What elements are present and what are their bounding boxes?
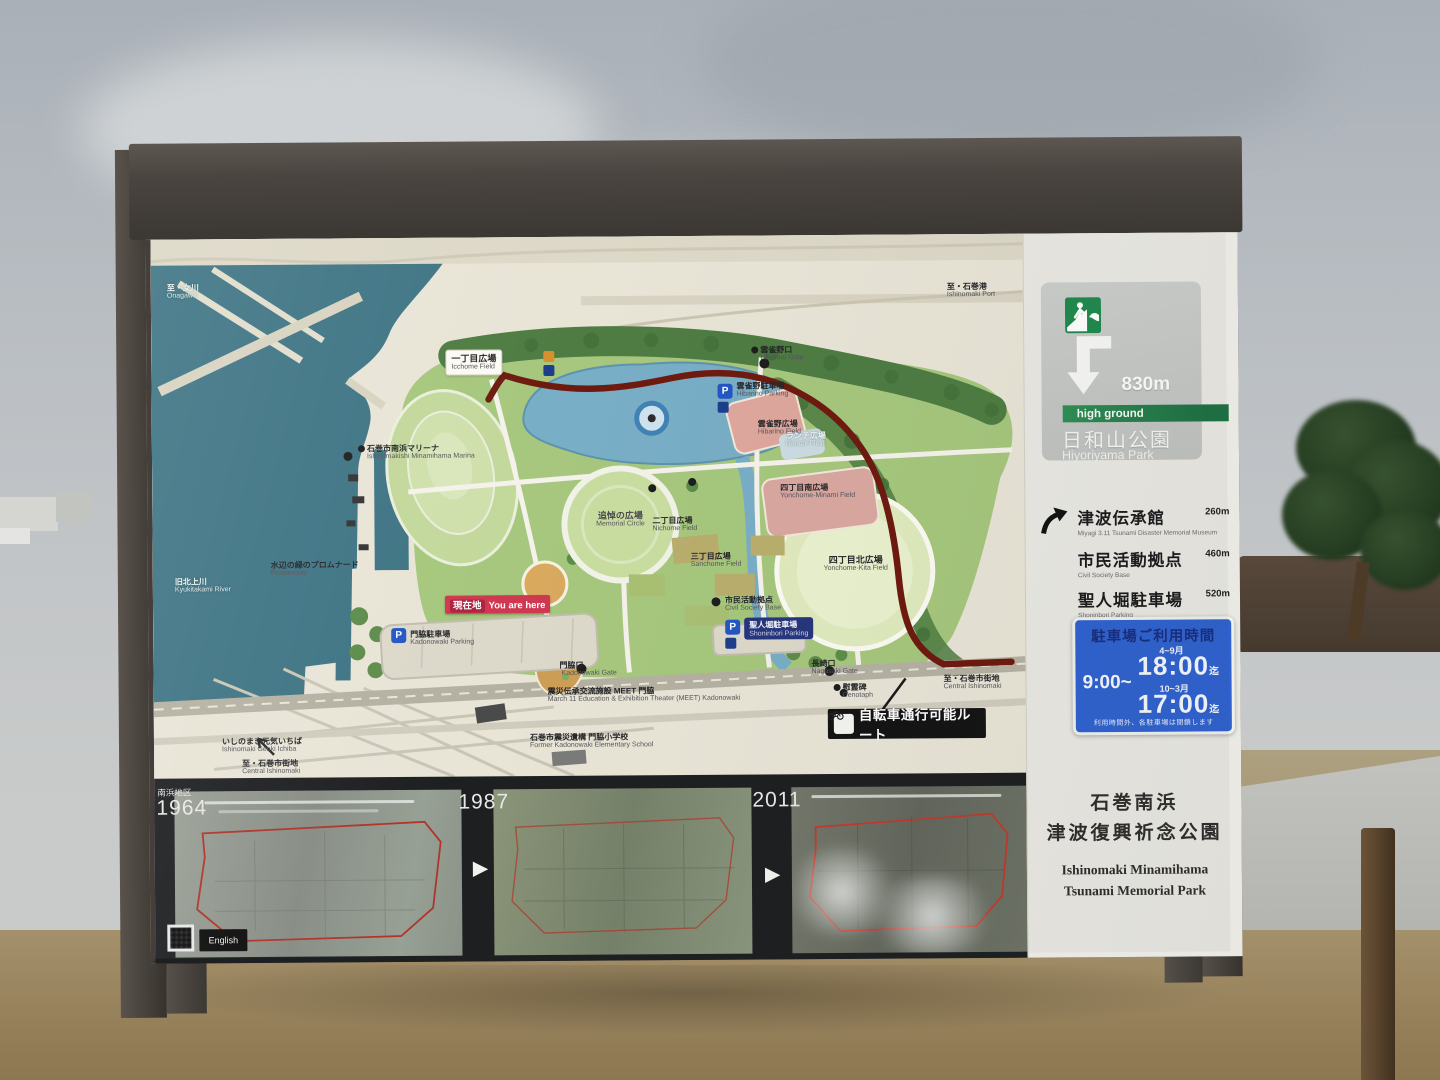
- closing-time-summer: 18:00迄: [1137, 652, 1220, 679]
- map-label-genki-ichiba: いしのまき元気いちばIshinomaki Genki Ichiba: [222, 737, 302, 755]
- destination-en: Hiyoriyama Park: [1062, 448, 1154, 463]
- you-are-here-marker: 現在地You are here: [445, 595, 550, 614]
- parking-icon: P: [725, 620, 740, 635]
- high-ground-bar: high ground: [1063, 404, 1229, 422]
- poi-dot-icon: [358, 446, 365, 453]
- photo-year-2011: 2011: [752, 788, 801, 812]
- facility-icon: [543, 351, 554, 362]
- map-label-kyukitakami: 旧北上川Kyukitakami River: [175, 577, 231, 595]
- map-label-kadonowaki-parking: 門脇駐車場Kadonowaki Parking: [410, 630, 474, 648]
- direction-row: 津波伝承館 Miyagi 3.11 Tsunami Disaster Memor…: [1077, 504, 1229, 537]
- park-map: 至・女川Onagawa 旧北上川Kyukitakami River 石巻市南浜マ…: [150, 234, 1026, 779]
- map-label-cenotaph: 慰霊碑Cenotaph: [834, 683, 873, 701]
- photo-year-1987: 1987: [458, 790, 509, 814]
- opening-time: 9:00~: [1083, 672, 1132, 694]
- aerial-photo-1987: [493, 788, 752, 956]
- qr-code: [167, 924, 194, 951]
- park-title: 石巻南浜 津波復興祈念公園 Ishinomaki Minamihama Tsun…: [1027, 788, 1242, 902]
- map-label-shoninbori-parking: 聖人堀駐車場Shoninbori Parking: [744, 617, 813, 639]
- parking-hours-sign: 駐車場ご利用時間 4~9月 18:00迄 9:00~ 10~3月 17:00迄 …: [1072, 616, 1235, 735]
- parking-icon: P: [717, 384, 732, 399]
- park-information-sign: 至・女川Onagawa 旧北上川Kyukitakami River 石巻市南浜マ…: [0, 0, 1440, 1080]
- photo-year-1964: 1964: [156, 796, 207, 820]
- map-label-former-school: 石巻市震災遺構 門脇小学校Former Kadonowaki Elementar…: [530, 732, 653, 750]
- map-label-central-ishinomaki-e: 至・石巻市街地Central Ishinomaki: [944, 674, 1002, 692]
- map-label-sanchome-field: 三丁目広場Sanchome Field: [691, 552, 742, 570]
- aerial-photo-2011: [791, 786, 1027, 954]
- map-label-nagasaki-gate: 長崎口Nagasaki Gate: [811, 659, 857, 677]
- map-label-hibarino-parking: 雲雀野駐車場Hibarino Parking: [736, 381, 788, 399]
- map-label-nichome-field: 二丁目広場Nichome Field: [652, 516, 697, 534]
- down-arrow-icon: [1057, 336, 1117, 403]
- map-label-yonchome-kita: 四丁目北広場Yonchome-Kita Field: [803, 554, 909, 573]
- gate-dot-icon: [751, 347, 758, 354]
- sign-panel: 至・女川Onagawa 旧北上川Kyukitakami River 石巻市南浜マ…: [145, 232, 1237, 964]
- next-arrow-icon: ▶: [765, 864, 781, 884]
- parking-hours-title: 駐車場ご利用時間: [1075, 624, 1231, 646]
- evacuation-distance: 830m: [1121, 374, 1170, 396]
- tsunami-evacuation-icon: [1065, 297, 1101, 333]
- map-label-kadonowaki-gate: 門脇口Kadonowaki Gate: [559, 661, 616, 679]
- evacuation-box: 830m 日和山公園 Hiyoriyama Park: [1041, 281, 1202, 460]
- map-label-hibarino-gate: 雲雀野口Hibarino Gate: [751, 345, 803, 363]
- info-column: 830m 日和山公園 Hiyoriyama Park high ground 津…: [1022, 232, 1242, 957]
- district-outline: [493, 788, 752, 956]
- toilet-icon: [725, 638, 736, 649]
- map-label-marina: 石巻市南浜マリーナIshinomakishi Minamihama Marina: [358, 443, 475, 461]
- historical-photo-strip: 南浜地区 1964 1987 ▶: [154, 773, 1027, 964]
- map-label-ranchi-field: ランチ広場Ranchi Field: [786, 431, 826, 449]
- closing-time-winter: 17:00迄: [1138, 690, 1221, 717]
- map-label-central-ishinomaki-sw: 至・石巻市街地Central Ishinomaki: [242, 759, 300, 777]
- bicycle-icon: [834, 714, 854, 734]
- english-label: English: [199, 929, 247, 951]
- parking-icon: P: [391, 628, 406, 643]
- map-label-meet: 震災伝承交流施設 MEET 門脇March 11 Education & Exh…: [548, 686, 741, 705]
- map-label-promenade: 水辺の緑のプロムナードPromenade: [271, 560, 359, 578]
- toilet-icon: [543, 365, 554, 376]
- next-arrow-icon: ▶: [473, 858, 489, 878]
- map-label-onagawa: 至・女川Onagawa: [167, 283, 199, 300]
- bike-route-legend: 自転車通行可能ルート: [828, 708, 986, 739]
- smoke: [862, 876, 1003, 953]
- map-label-icchome-field: 一丁目広場Icchome Field: [445, 349, 502, 376]
- direction-row: 聖人堀駐車場 Shoninbori Parking 520m: [1078, 586, 1230, 619]
- poi-dot-icon: [834, 684, 841, 691]
- map-label-ishinomaki-port: 至・石巻港Ishinomaki Port: [947, 282, 995, 300]
- toilet-icon: [718, 402, 729, 413]
- parking-note: 利用時間外、各駐車場は閉鎖します: [1076, 717, 1232, 728]
- direction-arrow-icon: [1039, 505, 1069, 535]
- sign-header-bar: [129, 136, 1243, 240]
- direction-row: 市民活動拠点 Civil Society Base 460m: [1078, 546, 1230, 579]
- map-label-yonchome-minami: 四丁目南広場Yonchome-Minami Field: [780, 483, 855, 501]
- map-label-civil-society-base: 市民活動拠点Civil Society Base: [725, 595, 781, 613]
